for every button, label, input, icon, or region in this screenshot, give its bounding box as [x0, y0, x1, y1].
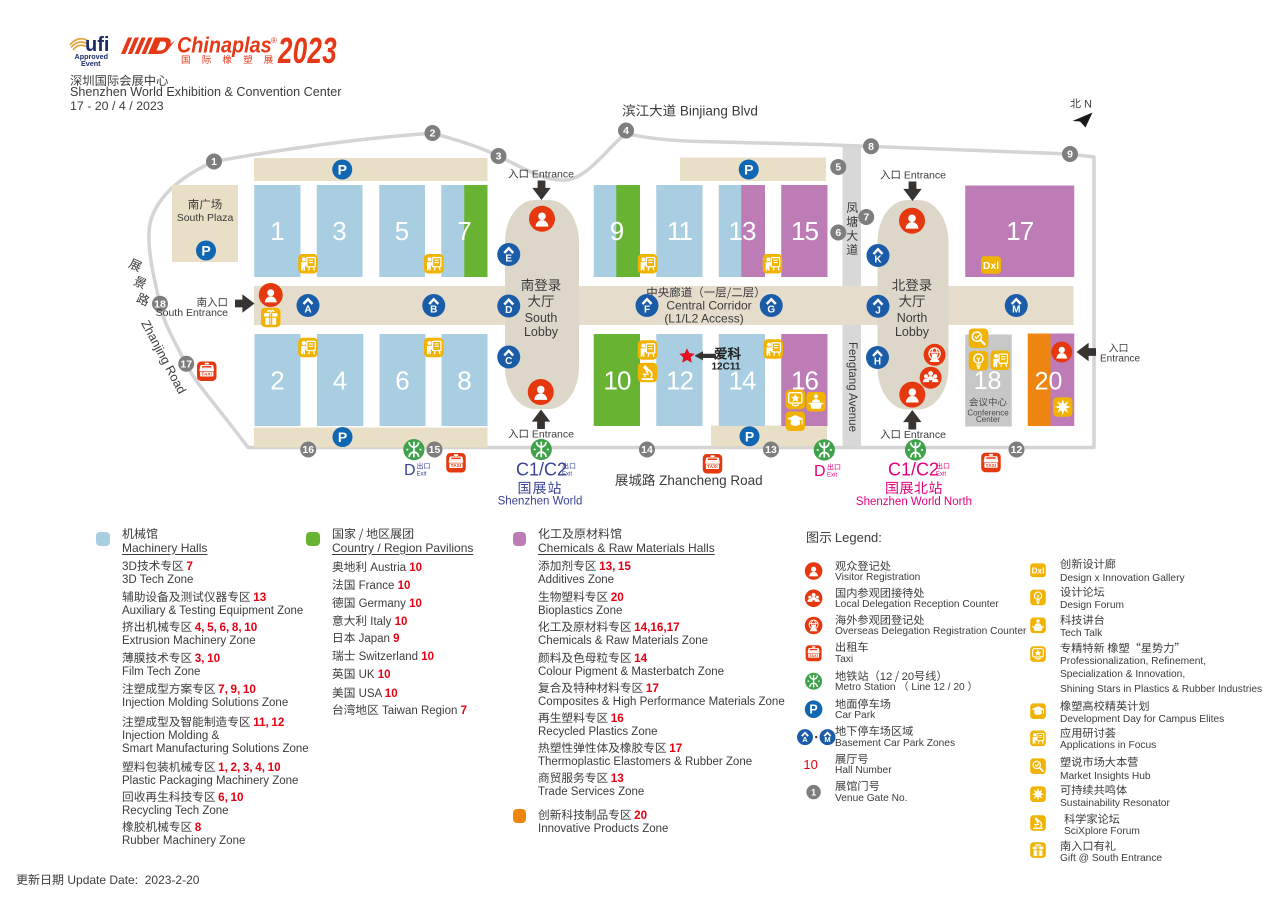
svg-text:20: 20 [1035, 368, 1063, 396]
svg-text:North: North [897, 311, 928, 325]
svg-text:J: J [875, 305, 881, 316]
svg-text:(L1/L2 Access): (L1/L2 Access) [664, 312, 743, 326]
svg-text:South Entrance: South Entrance [156, 307, 229, 319]
svg-text:G: G [767, 305, 775, 316]
svg-text:4: 4 [333, 366, 347, 396]
svg-text:17: 17 [180, 358, 192, 370]
svg-text:Lobby: Lobby [895, 325, 930, 339]
svg-text:7: 7 [863, 212, 869, 224]
svg-text:E: E [505, 254, 512, 265]
svg-text:4: 4 [623, 125, 629, 137]
svg-text:C1/C2: C1/C2 [516, 460, 567, 480]
svg-text:South Plaza: South Plaza [177, 212, 234, 224]
svg-text:D: D [404, 462, 416, 479]
svg-text:16: 16 [302, 444, 314, 456]
svg-text:12C11: 12C11 [712, 362, 741, 373]
svg-text:5: 5 [835, 162, 841, 174]
svg-text:8: 8 [457, 366, 471, 396]
svg-text:12: 12 [1011, 444, 1023, 456]
svg-text:11: 11 [667, 216, 693, 246]
svg-text:C: C [505, 356, 512, 367]
svg-text:出口: 出口 [936, 462, 950, 472]
svg-text:爱科: 爱科 [714, 343, 742, 363]
svg-text:18: 18 [974, 367, 1002, 395]
svg-text:A: A [304, 305, 311, 316]
svg-text:展城路 Zhancheng Road: 展城路 Zhancheng Road [615, 469, 763, 489]
svg-text:South: South [525, 311, 558, 325]
svg-text:3: 3 [332, 216, 346, 246]
svg-text:17: 17 [1006, 216, 1033, 246]
svg-text:3: 3 [496, 151, 502, 163]
svg-text:P: P [744, 162, 753, 178]
svg-text:D: D [505, 305, 512, 316]
svg-text:Fengtang Avenue: Fengtang Avenue [846, 342, 858, 432]
svg-text:出口: 出口 [417, 462, 431, 472]
svg-text:9: 9 [610, 216, 624, 246]
svg-text:滨江大道 Binjiang Blvd: 滨江大道 Binjiang Blvd [622, 100, 758, 120]
svg-text:13: 13 [729, 216, 756, 246]
svg-text:10: 10 [803, 757, 817, 772]
svg-text:1: 1 [211, 156, 217, 168]
svg-text:Exit: Exit [417, 472, 427, 478]
svg-text:F: F [644, 305, 650, 316]
svg-text:会议中心: 会议中心 [969, 395, 1008, 409]
svg-text:大厅: 大厅 [899, 290, 926, 310]
svg-text:Exit: Exit [562, 472, 572, 478]
svg-text:2: 2 [270, 366, 284, 396]
svg-text:12: 12 [666, 366, 693, 396]
svg-text:9: 9 [1067, 149, 1073, 161]
svg-text:15: 15 [791, 216, 818, 246]
svg-text:大厅: 大厅 [528, 290, 555, 310]
svg-text:入口 Entrance: 入口 Entrance [880, 168, 946, 183]
svg-text:5: 5 [395, 216, 409, 246]
svg-text:Central Corridor: Central Corridor [666, 299, 751, 313]
svg-text:6: 6 [835, 227, 841, 239]
svg-text:出口: 出口 [562, 462, 576, 472]
svg-text:北 N: 北 N [1070, 96, 1092, 112]
svg-text:Lobby: Lobby [524, 325, 559, 339]
svg-text:8: 8 [868, 141, 874, 153]
svg-text:M: M [1012, 305, 1020, 316]
svg-text:1: 1 [811, 787, 816, 797]
svg-text:路: 路 [134, 287, 154, 310]
svg-text:14: 14 [641, 444, 653, 456]
svg-text:B: B [430, 305, 437, 316]
svg-text:13: 13 [765, 444, 777, 456]
svg-text:6: 6 [395, 366, 409, 396]
svg-text:P: P [338, 162, 347, 178]
svg-text:Entrance: Entrance [1100, 354, 1140, 365]
svg-text:P: P [745, 428, 754, 444]
svg-text:15: 15 [429, 444, 441, 456]
svg-text:入口 Entrance: 入口 Entrance [880, 427, 946, 442]
svg-text:入口 Entrance: 入口 Entrance [508, 167, 574, 182]
svg-text:Center: Center [976, 415, 1000, 424]
svg-text:D: D [814, 463, 826, 480]
svg-text:P: P [809, 703, 817, 717]
svg-text:2: 2 [430, 128, 436, 140]
svg-text:Shenzhen World: Shenzhen World [498, 496, 583, 508]
svg-text:Shenzhen World North: Shenzhen World North [856, 496, 972, 508]
svg-text:10: 10 [604, 366, 631, 396]
svg-text:7: 7 [457, 216, 471, 246]
svg-text:P: P [338, 429, 347, 445]
svg-text:道: 道 [846, 241, 858, 258]
svg-text:国展北站: 国展北站 [885, 478, 943, 498]
svg-text:南广场: 南广场 [188, 197, 223, 213]
svg-text:Exit: Exit [827, 473, 837, 479]
svg-text:M: M [824, 735, 830, 744]
svg-text:H: H [874, 357, 881, 368]
svg-text:C1/C2: C1/C2 [888, 460, 939, 480]
svg-text:出口: 出口 [827, 463, 841, 473]
svg-text:1: 1 [270, 216, 284, 246]
svg-text:入口: 入口 [1109, 340, 1129, 355]
svg-text:P: P [201, 243, 210, 259]
svg-text:A: A [802, 735, 808, 744]
svg-text:Exit: Exit [936, 472, 946, 478]
svg-text:K: K [874, 255, 882, 266]
